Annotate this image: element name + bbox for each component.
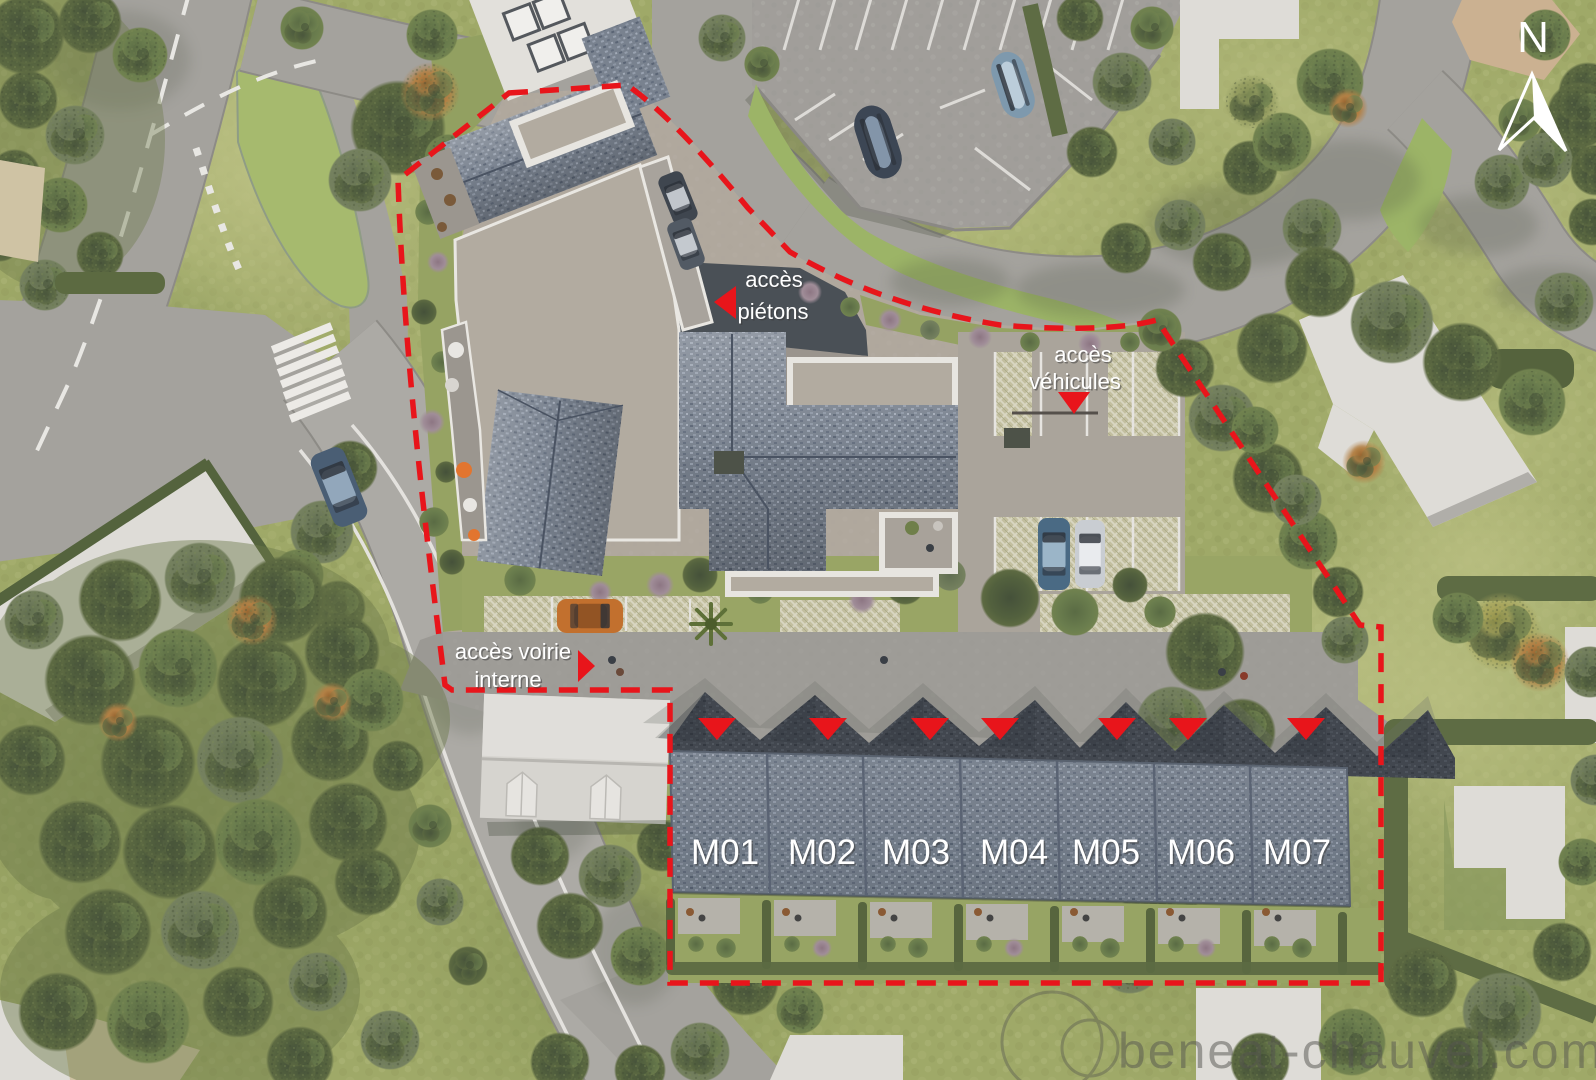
svg-text:M05: M05: [1072, 833, 1140, 872]
svg-text:M01: M01: [691, 833, 759, 872]
svg-text:M07: M07: [1263, 833, 1331, 872]
svg-text:accès: accès: [745, 267, 802, 292]
svg-text:véhicules: véhicules: [1029, 369, 1121, 394]
svg-text:M04: M04: [980, 833, 1048, 872]
svg-text:accès voirie: accès voirie: [455, 639, 571, 664]
svg-text:beneat-chauvel.com: beneat-chauvel.com: [1118, 1023, 1596, 1079]
svg-text:interne: interne: [474, 667, 541, 692]
svg-text:M06: M06: [1167, 833, 1235, 872]
svg-text:piétons: piétons: [738, 299, 809, 324]
svg-text:accès: accès: [1054, 342, 1111, 367]
svg-text:M03: M03: [882, 833, 950, 872]
svg-text:N: N: [1517, 13, 1549, 62]
svg-text:M02: M02: [788, 833, 856, 872]
